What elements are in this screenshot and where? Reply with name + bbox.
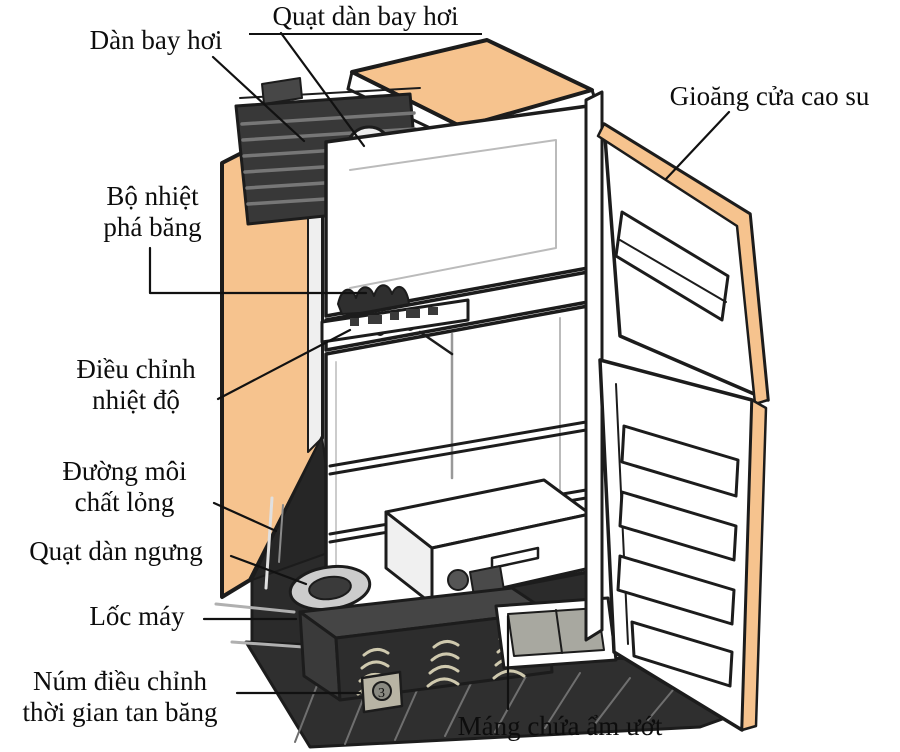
- label-quat-dan-ngung: Quạt dàn ngưng: [1, 536, 231, 567]
- label-dan-bay-hoi: Dàn bay hơi: [72, 25, 240, 56]
- label-line: phá băng: [85, 212, 220, 243]
- leader-line-gioang-cua-cao-su: [666, 112, 729, 179]
- label-dieu-chinh-nhiet-do: Điều chỉnh nhiệt độ: [52, 354, 220, 417]
- label-num-dieu-chinh: Núm điều chỉnh thời gian tan băng: [0, 666, 240, 729]
- label-line: Bộ nhiệt: [85, 181, 220, 212]
- evaporator-bracket: [262, 78, 302, 104]
- label-line: nhiệt độ: [52, 385, 220, 416]
- motor-lump: [448, 570, 468, 590]
- label-line: Núm điều chỉnh: [0, 666, 240, 697]
- timer-knob-mark: 3: [378, 686, 385, 701]
- label-quat-dan-bay-hoi: Quạt dàn bay hơi: [249, 1, 482, 35]
- label-line: Điều chỉnh: [52, 354, 220, 385]
- label-line: Đường môi: [32, 456, 217, 487]
- label-loc-may: Lốc máy: [72, 601, 202, 632]
- label-duong-moi-chat-long: Đường môi chất lỏng: [32, 456, 217, 519]
- label-line: chất lỏng: [32, 487, 217, 518]
- label-line: thời gian tan băng: [0, 697, 240, 728]
- refrigerator-diagram-stage: 3 Quạt: [0, 0, 900, 752]
- label-gioang-cua-cao-su: Gioăng cửa cao su: [642, 81, 897, 112]
- label-bo-nhiet-pha-bang: Bộ nhiệt phá băng: [85, 181, 220, 244]
- label-mang-chua-am-uot: Máng chứa ẩm ướt: [424, 711, 696, 742]
